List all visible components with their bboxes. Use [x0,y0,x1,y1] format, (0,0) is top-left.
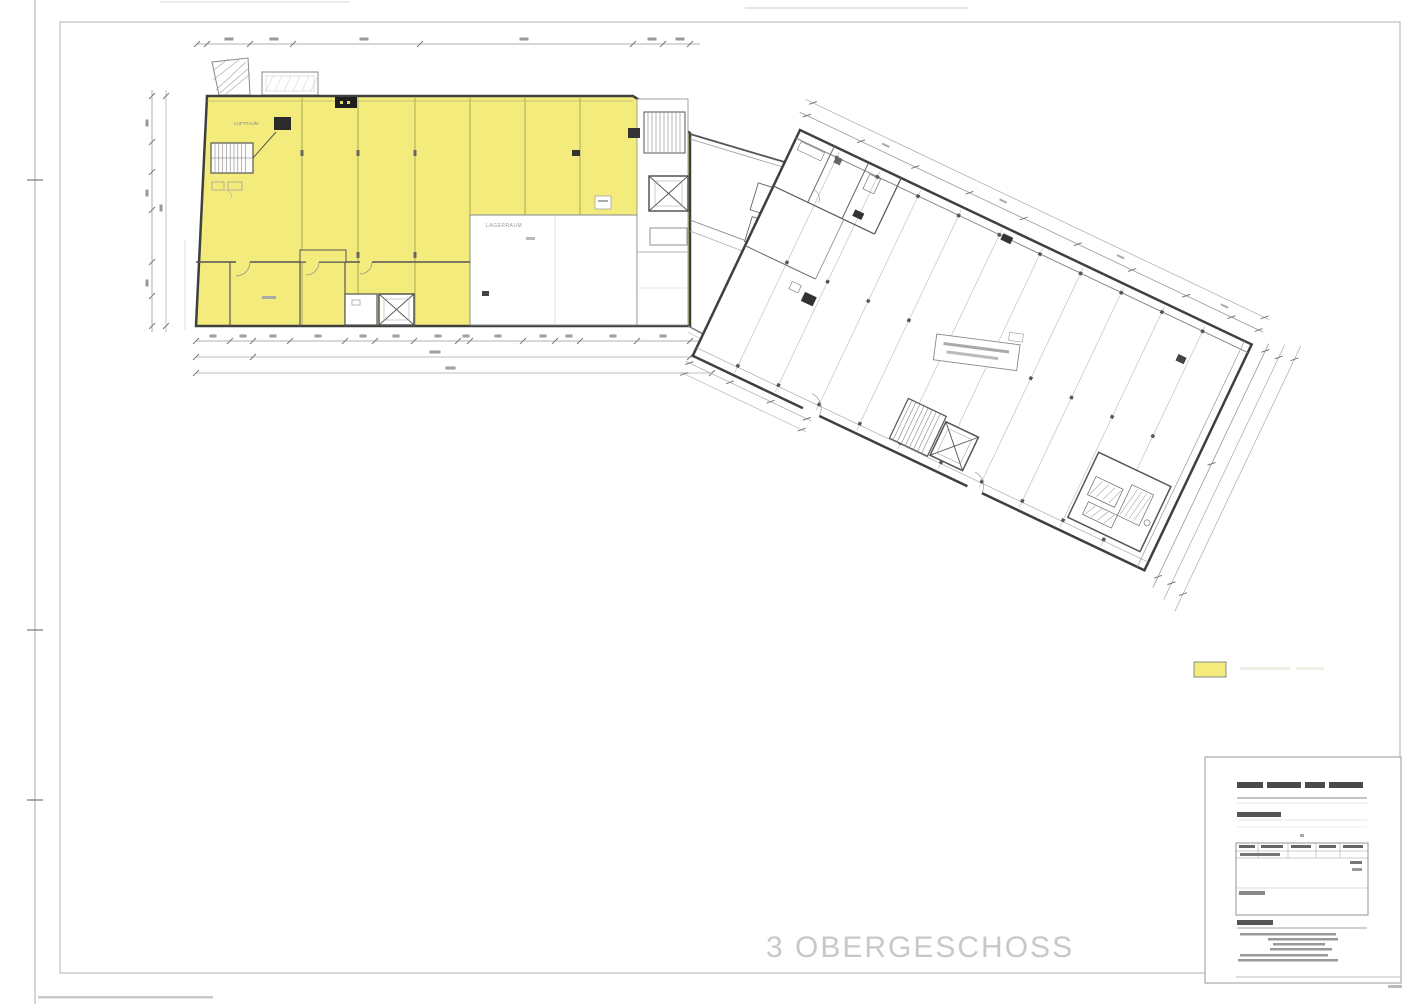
shaft-mark [628,128,640,138]
left-building: LAGERRAUM [196,58,690,326]
storage-room-area [470,215,637,325]
room-label-bar [262,296,276,299]
void-label: LUFTRAUM [234,121,259,126]
storage-room-label: LAGERRAUM [486,223,522,229]
titleblock-header [1237,782,1363,788]
fixture-mark [572,150,580,156]
fixture-mark [482,291,489,296]
legend-highlight-swatch [1194,662,1226,677]
small-room [345,294,377,325]
right-building [675,97,1309,613]
roof-protrusion-rect [262,72,318,95]
stairs [644,112,685,153]
legend [1194,662,1324,677]
shaft-box [274,117,291,130]
title-block [1205,757,1402,988]
room-tag [335,97,357,108]
titleblock-field-label [1237,812,1281,817]
floor-title: 3 OBERGESCHOSS [766,931,1074,964]
small-note-box [595,196,611,209]
legend-text-faint [1240,667,1290,670]
scanned-plan-page: LAGERRAUM [0,0,1422,1004]
elevator [649,176,688,211]
small-elevator [379,294,414,325]
floor-plan: LAGERRAUM [0,0,1422,1004]
titleblock-signature-label [1237,920,1273,925]
core-strip [637,99,688,325]
microprint-bar [38,996,213,999]
